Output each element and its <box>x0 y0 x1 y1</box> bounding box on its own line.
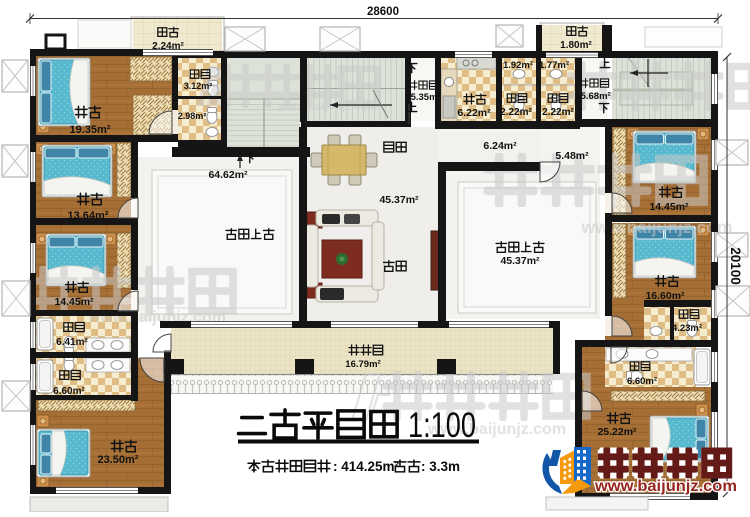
svg-text:1:100: 1:100 <box>408 406 476 445</box>
svg-text:6.60m²: 6.60m² <box>627 376 657 387</box>
svg-text:13.64m²: 13.64m² <box>68 210 109 222</box>
svg-text:15.35m²: 15.35m² <box>405 92 440 103</box>
svg-text:1.77m²: 1.77m² <box>539 60 569 71</box>
svg-text:www.baijunjz.com: www.baijunjz.com <box>277 101 377 113</box>
svg-text:2.22m²: 2.22m² <box>542 107 574 118</box>
svg-text:14.45m²: 14.45m² <box>54 296 94 308</box>
svg-text:28600: 28600 <box>367 6 399 18</box>
svg-text:23.50m²: 23.50m² <box>98 454 139 466</box>
svg-text:45.37m²: 45.37m² <box>379 194 419 206</box>
svg-text:: 414.25m²: : 414.25m² <box>333 459 400 474</box>
svg-text:3.12m²: 3.12m² <box>184 81 213 91</box>
svg-text:16.79m²: 16.79m² <box>345 359 380 370</box>
svg-text:14.45m²: 14.45m² <box>649 201 689 213</box>
svg-text:25.22m²: 25.22m² <box>597 426 637 438</box>
svg-text:64.62m²: 64.62m² <box>208 169 248 181</box>
svg-text:www.baijunjz.com: www.baijunjz.com <box>594 478 737 495</box>
svg-text:19.35m²: 19.35m² <box>70 124 111 136</box>
svg-text:15.68m²: 15.68m² <box>575 91 610 102</box>
svg-text:4.23m²: 4.23m² <box>672 323 702 334</box>
svg-text:6.22m²: 6.22m² <box>457 107 491 119</box>
svg-text:: 3.3m: : 3.3m <box>421 459 460 474</box>
svg-text:5.48m²: 5.48m² <box>555 150 589 162</box>
svg-text:16.60m²: 16.60m² <box>645 290 685 302</box>
svg-text:20100: 20100 <box>728 247 743 285</box>
svg-text:1.92m²: 1.92m² <box>503 60 533 71</box>
svg-text:1.80m²: 1.80m² <box>560 40 592 51</box>
svg-text:2.98m²: 2.98m² <box>178 111 207 121</box>
svg-text:2.22m²: 2.22m² <box>500 107 532 118</box>
svg-text:6.24m²: 6.24m² <box>483 140 517 152</box>
svg-text:6.41m²: 6.41m² <box>56 337 88 348</box>
svg-text:45.37m²: 45.37m² <box>500 255 540 267</box>
svg-text:2.24m²: 2.24m² <box>152 41 184 52</box>
svg-text:6.60m²: 6.60m² <box>53 386 85 397</box>
